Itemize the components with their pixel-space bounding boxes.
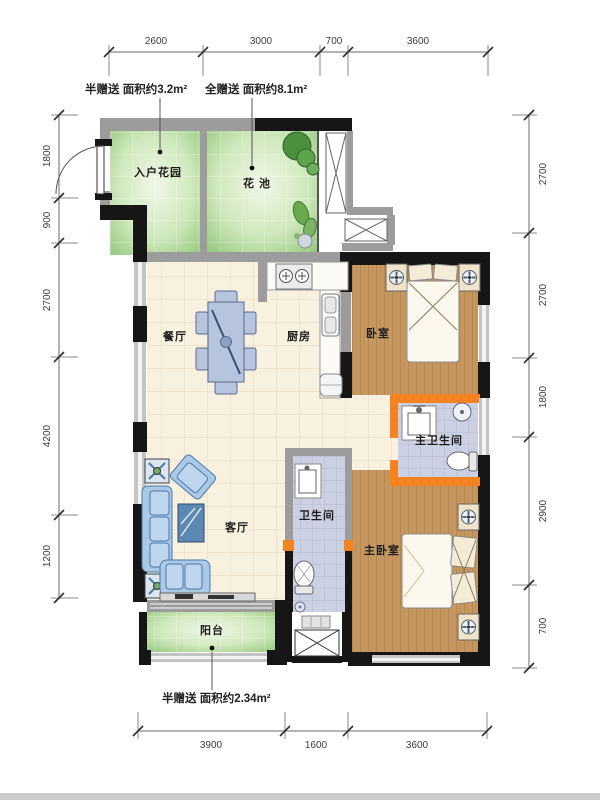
room-label-dining: 餐厅 [162,329,187,343]
dim-right-1: 2700 [538,162,549,185]
bed [407,281,459,362]
floor-plan-page: 2600 3000 700 3600 3900 1600 3600 1800 9… [0,0,600,800]
dim-left-4: 4200 [42,424,53,447]
annotation-gift-bottom: 半赠送 面积约2.34m² [162,691,271,705]
room-label-master-bedroom: 主卧室 [364,543,400,557]
dim-right-4: 2900 [538,499,549,522]
dim-left-2: 900 [42,211,53,228]
room-label-kitchen: 厨房 [287,329,311,343]
dim-top-3: 700 [326,36,343,47]
room-label-bedroom: 卧室 [366,326,390,340]
room-label-flower-bed: 花 池 [243,176,271,190]
annotation-gift-top-right: 全赠送 面积约8.1m² [204,82,307,96]
dim-right-5: 700 [538,617,549,634]
room-label-living: 客厅 [224,520,249,534]
dim-top-1: 2600 [145,36,168,47]
annotation-gift-top-left: 半赠送 面积约3.2m² [85,82,187,96]
dim-bottom-1: 3900 [200,740,223,751]
dim-right-3: 1800 [538,385,549,408]
dim-bottom-2: 1600 [305,740,328,751]
dim-left-3: 2700 [42,288,53,311]
tv-stand [160,593,255,601]
floor-plan-drawing: 2600 3000 700 3600 3900 1600 3600 1800 9… [0,0,600,800]
dimension-left: 1800 900 2700 4200 1200 [42,110,78,603]
room-label-master-bath: 主卫生间 [415,433,463,447]
room-label-bathroom: 卫生间 [299,508,335,522]
entry-door [56,146,104,194]
dimension-bottom: 3900 1600 3600 [133,712,492,751]
sofa [142,486,172,572]
master-bed [402,534,452,608]
dim-left-5: 1200 [42,544,53,567]
toilet [447,452,471,470]
dim-bottom-3: 3600 [406,740,429,751]
room-label-balcony: 阳台 [200,623,224,637]
garden-grid [110,131,200,255]
room-label-entry-garden: 入户花园 [134,165,182,179]
dimension-right: 2700 2700 1800 2900 700 [512,110,549,673]
armchair-2 [160,560,210,596]
dim-left-1: 1800 [42,144,53,167]
dimension-top: 2600 3000 700 3600 [104,36,493,76]
dim-top-2: 3000 [250,36,273,47]
dim-right-2: 2700 [538,283,549,306]
page-edge [0,793,600,800]
dim-top-4: 3600 [407,36,430,47]
